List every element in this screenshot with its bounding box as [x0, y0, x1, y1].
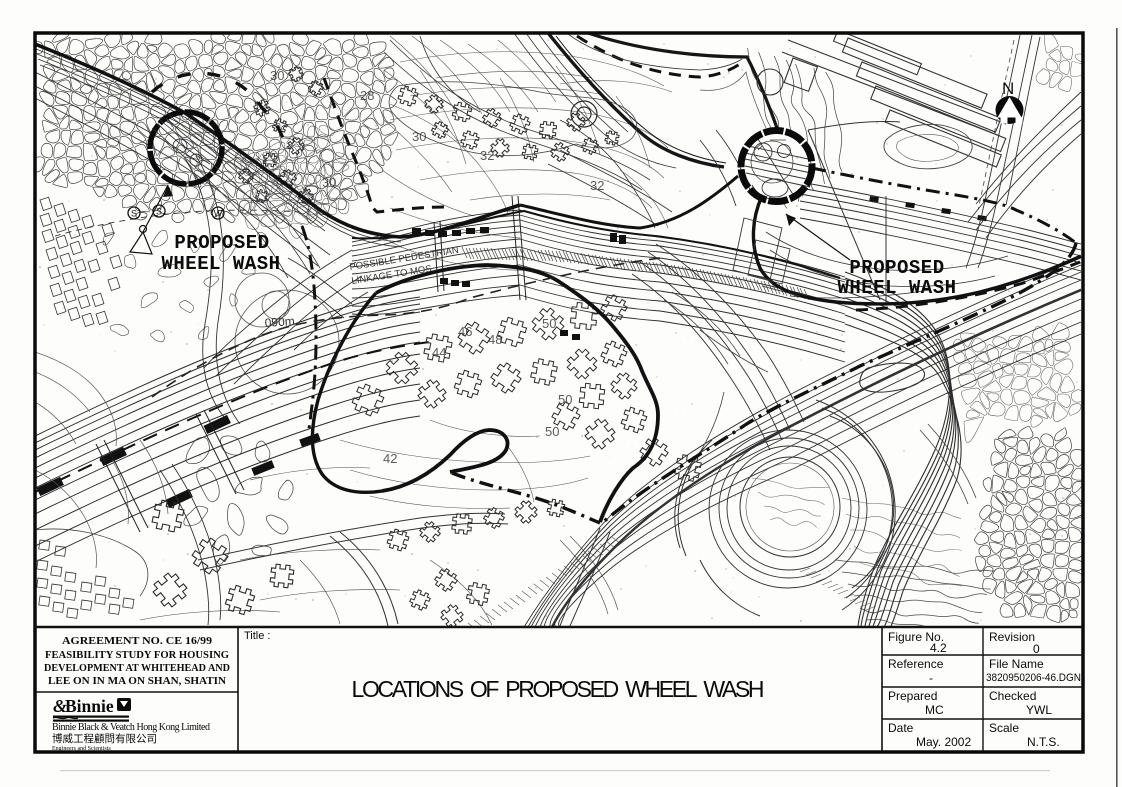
- svg-text:0: 0: [1033, 642, 1040, 656]
- svg-text:Prepared: Prepared: [888, 689, 937, 703]
- svg-text:50: 50: [545, 424, 559, 439]
- svg-text:WHEEL WASH: WHEEL WASH: [837, 277, 956, 299]
- svg-text:4.2: 4.2: [930, 641, 947, 655]
- svg-text:MC: MC: [925, 703, 944, 717]
- svg-text:42: 42: [383, 451, 397, 466]
- svg-text:Binnie Black & Veatch Hong Kon: Binnie Black & Veatch Hong Kong Limited: [52, 722, 210, 733]
- svg-text:32: 32: [590, 178, 604, 193]
- svg-text:YWL: YWL: [1026, 703, 1052, 717]
- svg-text:50: 50: [558, 392, 572, 407]
- svg-text:Reference: Reference: [888, 657, 944, 671]
- svg-text:30: 30: [270, 68, 284, 83]
- svg-text:WHEEL WASH: WHEEL WASH: [161, 253, 280, 275]
- svg-text:30: 30: [412, 129, 426, 144]
- svg-text:May. 2002: May. 2002: [916, 735, 971, 749]
- svg-text:Checked: Checked: [989, 689, 1036, 703]
- svg-text:PROPOSED: PROPOSED: [849, 257, 944, 279]
- svg-text:090m: 090m: [264, 314, 295, 330]
- svg-text:FEASIBILITY STUDY FOR HOUSING: FEASIBILITY STUDY FOR HOUSING: [45, 649, 229, 661]
- svg-text:博威工程顧問有限公司: 博威工程顧問有限公司: [52, 732, 157, 745]
- svg-text:30: 30: [322, 175, 336, 190]
- svg-text:LOCATIONS OF PROPOSED WHEEL: LOCATIONS OF PROPOSED WHEEL WASH: [352, 676, 765, 702]
- svg-text:LEE ON IN MA ON SHAN, SHATIN: LEE ON IN MA ON SHAN, SHATIN: [48, 675, 226, 687]
- svg-text:N: N: [1002, 79, 1014, 98]
- svg-text:Binnie: Binnie: [65, 696, 114, 716]
- svg-text:50: 50: [542, 316, 556, 331]
- svg-text:Title :: Title :: [244, 630, 271, 642]
- svg-text:File Name: File Name: [989, 657, 1044, 671]
- svg-text:Engineers and Scientists: Engineers and Scientists: [52, 746, 111, 752]
- svg-text:AGREEMENT NO. CE 16/99: AGREEMENT NO. CE 16/99: [62, 635, 213, 647]
- svg-text:46: 46: [458, 324, 472, 339]
- svg-text:S: S: [156, 207, 162, 217]
- svg-text:Scale: Scale: [989, 721, 1019, 735]
- svg-text:32: 32: [480, 148, 494, 163]
- svg-text:44: 44: [432, 345, 446, 360]
- svg-text:-: -: [929, 671, 933, 685]
- svg-text:3820950206-46.DGN: 3820950206-46.DGN: [986, 672, 1081, 684]
- svg-text:Revision: Revision: [989, 630, 1035, 644]
- svg-text:28: 28: [360, 88, 374, 103]
- svg-text:N.T.S.: N.T.S.: [1027, 735, 1060, 749]
- svg-text:PROPOSED: PROPOSED: [174, 232, 269, 254]
- svg-text:DEVELOPMENT AT WHITEHEAD AND: DEVELOPMENT AT WHITEHEAD AND: [44, 662, 230, 674]
- svg-text:S: S: [131, 209, 137, 219]
- svg-text:Date: Date: [888, 721, 914, 735]
- svg-text:48: 48: [488, 332, 502, 347]
- svg-text:W: W: [214, 209, 223, 219]
